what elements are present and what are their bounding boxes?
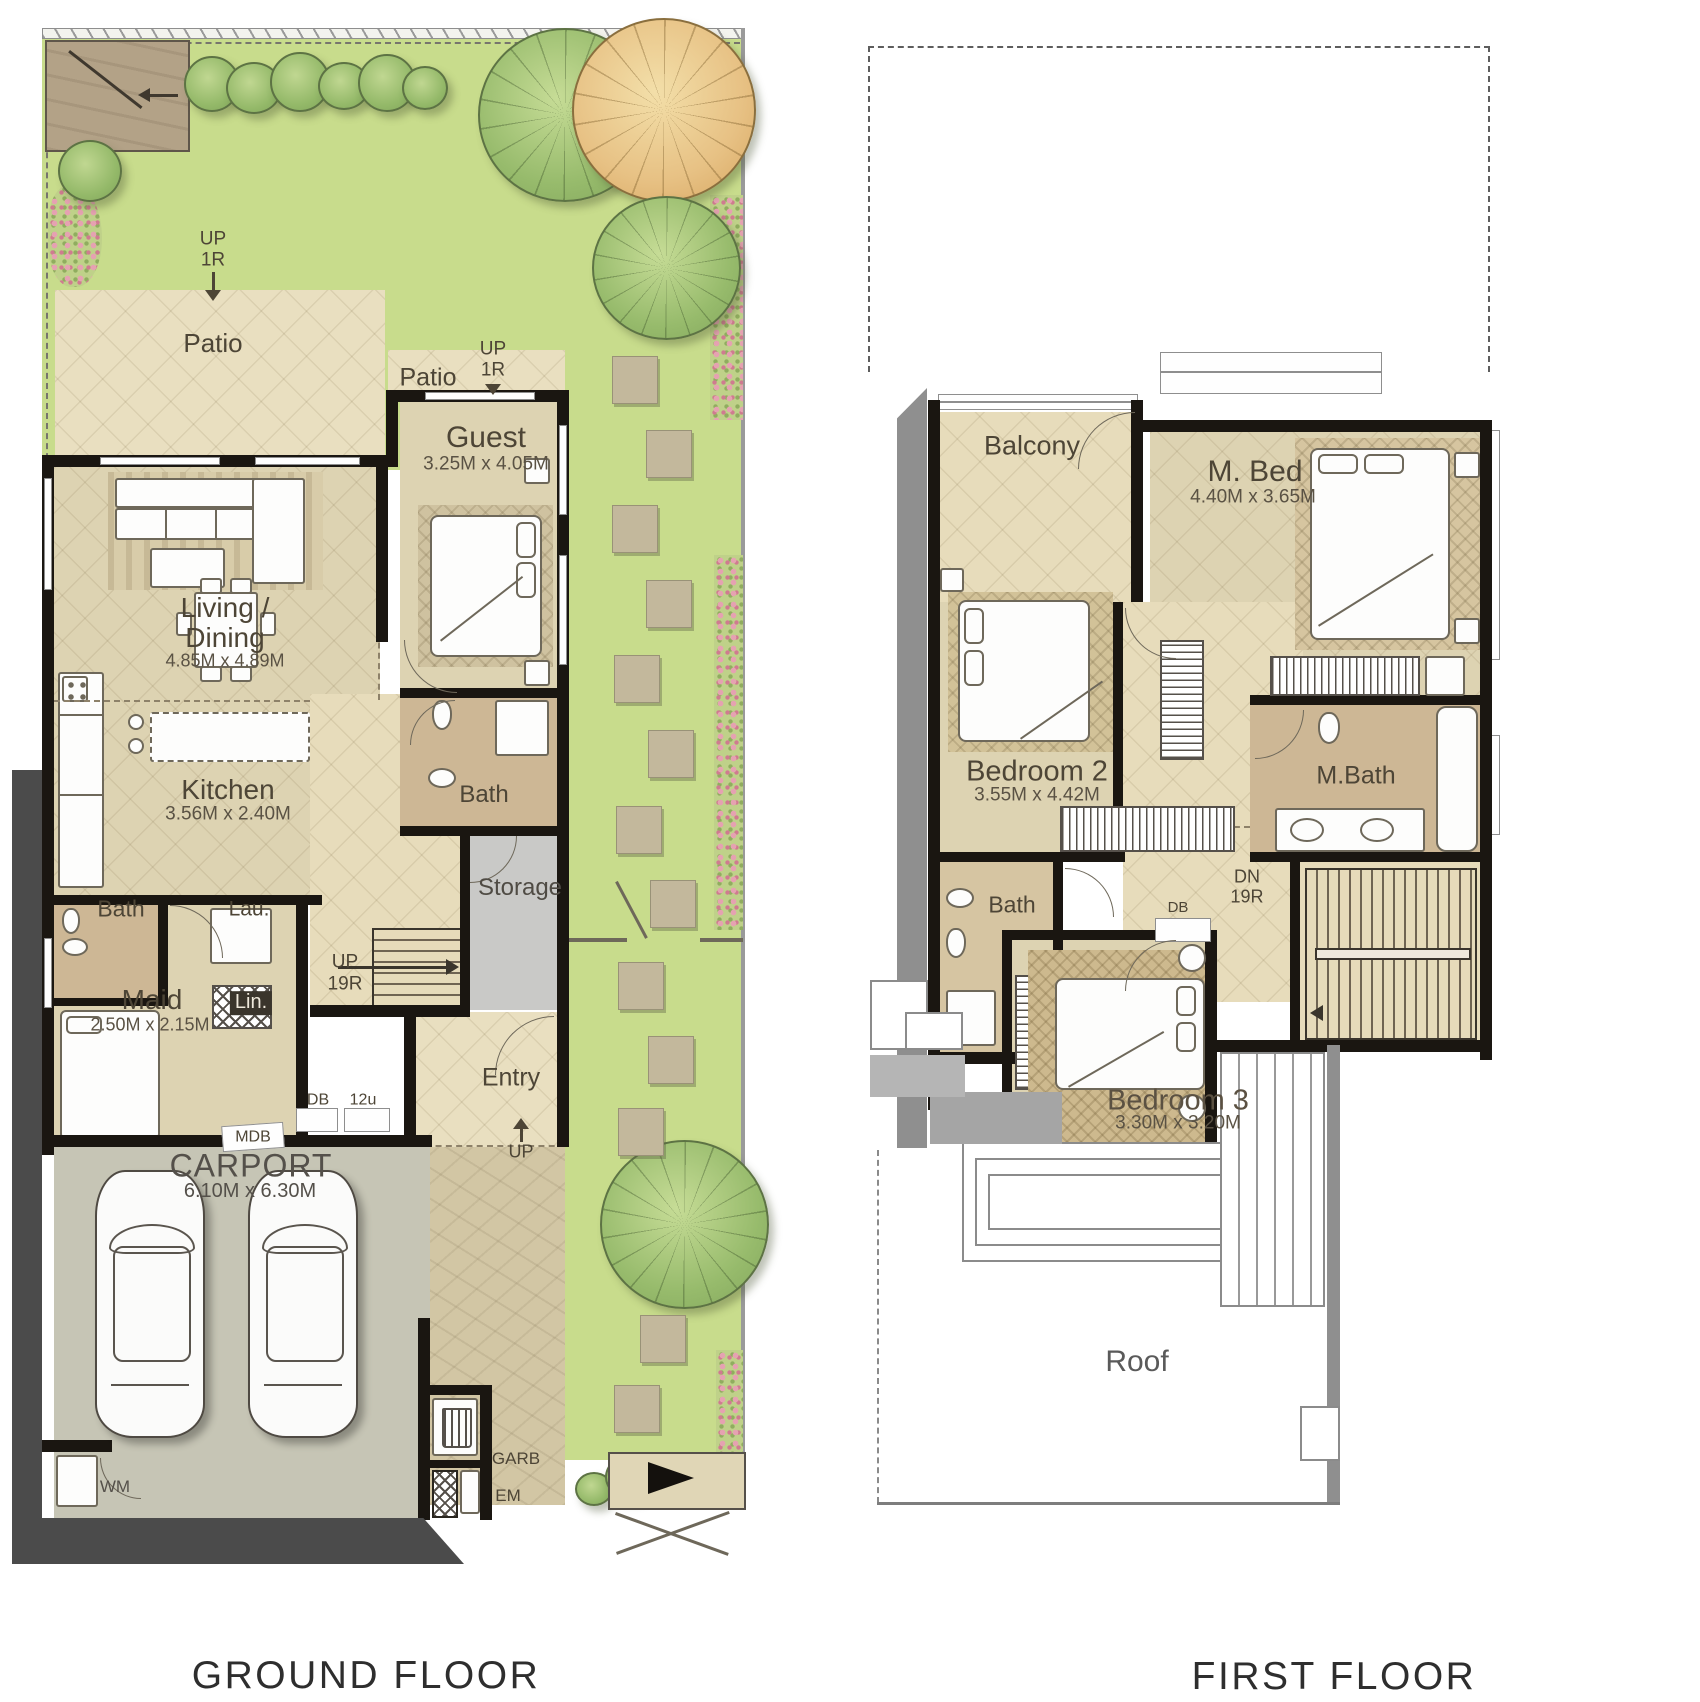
up-19r-label: 19R <box>328 975 363 996</box>
stepping-stone <box>648 1036 694 1084</box>
garb-label: GARB <box>492 1450 540 1468</box>
toilet-icon <box>1318 712 1340 744</box>
sink-icon <box>1360 818 1394 842</box>
gate-arrow-stem <box>148 94 178 97</box>
up-arrow-stem <box>520 1128 523 1142</box>
pillow <box>1176 986 1196 1016</box>
site-border-bottom <box>12 1518 464 1564</box>
pillow <box>964 650 984 686</box>
kitchen-label: Kitchen <box>181 775 274 805</box>
em-hatch-box <box>432 1470 458 1518</box>
car-windshield <box>262 1224 348 1254</box>
wall-segment <box>386 398 398 467</box>
stair-arrow-icon <box>1310 1005 1323 1021</box>
em-label: EM <box>495 1487 521 1505</box>
open-plan-dashed <box>415 1145 565 1147</box>
wall-segment <box>418 1460 492 1468</box>
tree-icon <box>592 196 741 340</box>
wall-segment <box>1217 1040 1492 1052</box>
toilet-icon <box>946 928 966 958</box>
ground-floor-caption: GROUND FLOOR <box>192 1654 541 1698</box>
pillow <box>964 608 984 644</box>
up-1r-label: 1R <box>201 251 225 272</box>
wall-segment <box>310 1005 470 1017</box>
wardrobe-closet <box>1270 656 1420 696</box>
gate-arrow-icon <box>138 88 150 102</box>
mdb-label: MDB <box>235 1128 271 1145</box>
roof-step <box>1300 1406 1340 1461</box>
garden-gate-wall <box>565 938 627 942</box>
living-dining-label: Living / <box>181 593 270 623</box>
db-label: DB <box>307 1091 329 1108</box>
wall-segment <box>418 1318 430 1520</box>
guest-label: Guest <box>446 422 526 454</box>
sink-icon <box>428 768 456 788</box>
em-box <box>460 1470 480 1514</box>
down-arrow-stem <box>212 272 215 290</box>
linen-label: Lin. <box>230 991 272 1015</box>
up-1r-label: 1R <box>481 361 505 382</box>
ledge-shadow <box>870 1055 965 1097</box>
dresser <box>1425 656 1465 696</box>
sink-icon <box>62 938 88 956</box>
bedroom2-label: Bedroom 2 <box>966 756 1108 787</box>
db-panel <box>1155 918 1211 942</box>
stepping-stone <box>612 356 658 404</box>
down-arrow-icon <box>205 290 221 301</box>
stepping-stone <box>646 580 692 628</box>
tree-icon <box>58 140 122 202</box>
pillow <box>1364 454 1404 474</box>
flower-bed <box>716 1350 743 1458</box>
kitchen-stool <box>128 714 144 730</box>
living-dining-dims: 4.85M x 4.89M <box>165 651 284 670</box>
window <box>425 392 535 400</box>
stepping-stone <box>640 1315 686 1363</box>
nightstand <box>1454 618 1480 644</box>
stove-icon <box>62 676 88 702</box>
master-bed <box>1310 448 1450 640</box>
bedroom2-dims: 3.55M x 4.42M <box>974 786 1100 807</box>
nightstand <box>524 660 550 686</box>
stepping-stone <box>618 1108 664 1156</box>
sink-icon <box>1290 818 1324 842</box>
roof-label: Roof <box>1105 1346 1168 1378</box>
car-icon <box>248 1170 358 1438</box>
bath-label: Bath <box>459 782 508 808</box>
entry-label: Entry <box>482 1065 540 1092</box>
sofa-chaise <box>252 478 305 584</box>
wall-segment <box>400 688 569 698</box>
wall-segment <box>404 1012 416 1147</box>
first-floor-plan: Balcony M. Bed 4.40M x 3.65M Bedroom 2 3… <box>770 0 1700 1590</box>
site-border-left <box>12 770 42 1564</box>
balcony-rail <box>938 394 1138 410</box>
car-roof <box>266 1246 344 1362</box>
wall-segment <box>1480 420 1492 1060</box>
pillow <box>1176 1022 1196 1052</box>
sink-icon <box>946 888 974 908</box>
master-bed-label: M. Bed <box>1207 456 1302 488</box>
window <box>559 555 567 665</box>
dn-19r-label: DN <box>1234 867 1260 886</box>
stepping-stone <box>650 880 696 928</box>
living-dining-label: Dining <box>185 623 264 653</box>
up-1r-label: UP <box>200 230 226 251</box>
car-roof <box>113 1246 191 1362</box>
kitchen-dims: 3.56M x 2.40M <box>165 805 291 826</box>
ledge-box <box>905 1012 963 1050</box>
wall-segment <box>376 467 388 642</box>
wall-segment <box>42 895 322 905</box>
window <box>559 425 567 515</box>
maid-label: Maid <box>122 985 183 1015</box>
bathtub-icon <box>1436 706 1478 852</box>
garbage-bin-icon <box>442 1408 472 1448</box>
kitchen-counter <box>58 672 104 888</box>
carport-label: CARPORT <box>170 1149 333 1184</box>
balcony-label: Balcony <box>984 431 1080 460</box>
boundary-dashed-left <box>868 46 870 372</box>
wardrobe-closet <box>1060 806 1235 852</box>
carport-dims: 6.10M x 6.30M <box>184 1181 316 1203</box>
wall-segment <box>928 400 940 1110</box>
kitchen-island <box>150 712 310 762</box>
patio-label: Patio <box>183 329 242 357</box>
bath-label: Bath <box>988 893 1035 918</box>
patio-main <box>55 290 385 468</box>
master-bed-dims: 4.40M x 3.65M <box>1190 488 1316 509</box>
stepping-stone <box>616 806 662 854</box>
up-1r-label: UP <box>480 340 506 361</box>
wall-segment <box>480 1385 492 1520</box>
bedroom3-dims: 3.30M x 3.20M <box>1115 1114 1241 1135</box>
roof-bottom-edge <box>877 1502 1340 1505</box>
stepping-stone <box>618 962 664 1010</box>
stepping-stone <box>614 655 660 703</box>
pillow <box>1318 454 1358 474</box>
wall-segment <box>557 1015 569 1147</box>
patio-label: Patio <box>400 365 457 392</box>
window <box>44 938 52 1008</box>
down-arrow-icon <box>485 384 501 395</box>
car-icon <box>95 1170 205 1438</box>
terrace-rail <box>988 1174 1251 1230</box>
wall-segment <box>1250 695 1492 705</box>
first-floor-caption: FIRST FLOOR <box>1192 1655 1477 1699</box>
toilet-icon <box>62 908 80 934</box>
db-panel <box>296 1108 338 1132</box>
bay-window <box>1160 352 1382 394</box>
driveway-arrow-icon <box>648 1462 694 1494</box>
storage-label: Storage <box>478 875 562 901</box>
tree-icon <box>402 66 448 110</box>
nightstand-lamp <box>1178 944 1206 972</box>
car-windshield <box>109 1224 195 1254</box>
wall-segment <box>42 1440 112 1452</box>
car-rear-line <box>264 1384 342 1386</box>
stepping-stone <box>612 505 658 553</box>
stepping-stone <box>648 730 694 778</box>
stair-arrow-icon <box>446 959 459 975</box>
pillow <box>516 522 536 558</box>
up-entry-label: UP <box>508 1142 533 1161</box>
kitchen-stool <box>128 738 144 754</box>
wm-label: WM <box>100 1478 130 1496</box>
window <box>44 478 52 590</box>
laundry-label: Lau. <box>229 899 270 922</box>
stepping-stone <box>646 430 692 478</box>
guest-dims: 3.25M x 4.05M <box>423 455 549 476</box>
wall-segment <box>928 852 1125 862</box>
master-bath-label: M.Bath <box>1316 763 1395 790</box>
wall-segment <box>460 834 470 1010</box>
wall-segment <box>1143 420 1492 432</box>
db-panel <box>344 1108 390 1132</box>
tree-icon <box>600 1140 769 1309</box>
up-19r-label: UP <box>332 953 358 974</box>
washing-machine-icon <box>56 1455 98 1507</box>
maid-dims: 2.50M x 2.15M <box>90 1015 209 1034</box>
car-rear-line <box>111 1384 189 1386</box>
ground-floor-plan: UP 1R Patio UP 1R Patio Guest 3.25M x 4.… <box>0 0 770 1590</box>
door-swing <box>1065 868 1114 917</box>
nightstand <box>940 568 964 592</box>
garden-gate-wall <box>700 938 743 942</box>
roof-dashed-left <box>877 1150 879 1503</box>
boundary-dashed-right <box>1488 46 1490 372</box>
wall-segment <box>418 1385 492 1395</box>
wall-segment <box>1250 852 1492 862</box>
stepping-stone <box>614 1385 660 1433</box>
floor-plan-canvas: UP 1R Patio UP 1R Patio Guest 3.25M x 4.… <box>0 0 1700 1702</box>
tree-icon <box>572 18 756 202</box>
stair-rail <box>1315 948 1471 960</box>
nightstand <box>1454 452 1480 478</box>
open-plan-dashed <box>54 700 310 702</box>
dn-19r-label: 19R <box>1230 887 1263 906</box>
wall-segment <box>400 826 569 836</box>
shower-icon <box>495 700 549 756</box>
window <box>255 457 360 465</box>
terrace-shadow <box>930 1092 1062 1144</box>
sofa-seat <box>115 508 265 540</box>
flower-bed <box>714 555 743 930</box>
window <box>100 457 220 465</box>
db-units-label: 12u <box>350 1091 377 1108</box>
db-label: DB <box>1168 900 1189 916</box>
bath-label: Bath <box>97 897 144 922</box>
wall-segment <box>1290 862 1300 1052</box>
boundary-dashed-top <box>868 46 1490 48</box>
